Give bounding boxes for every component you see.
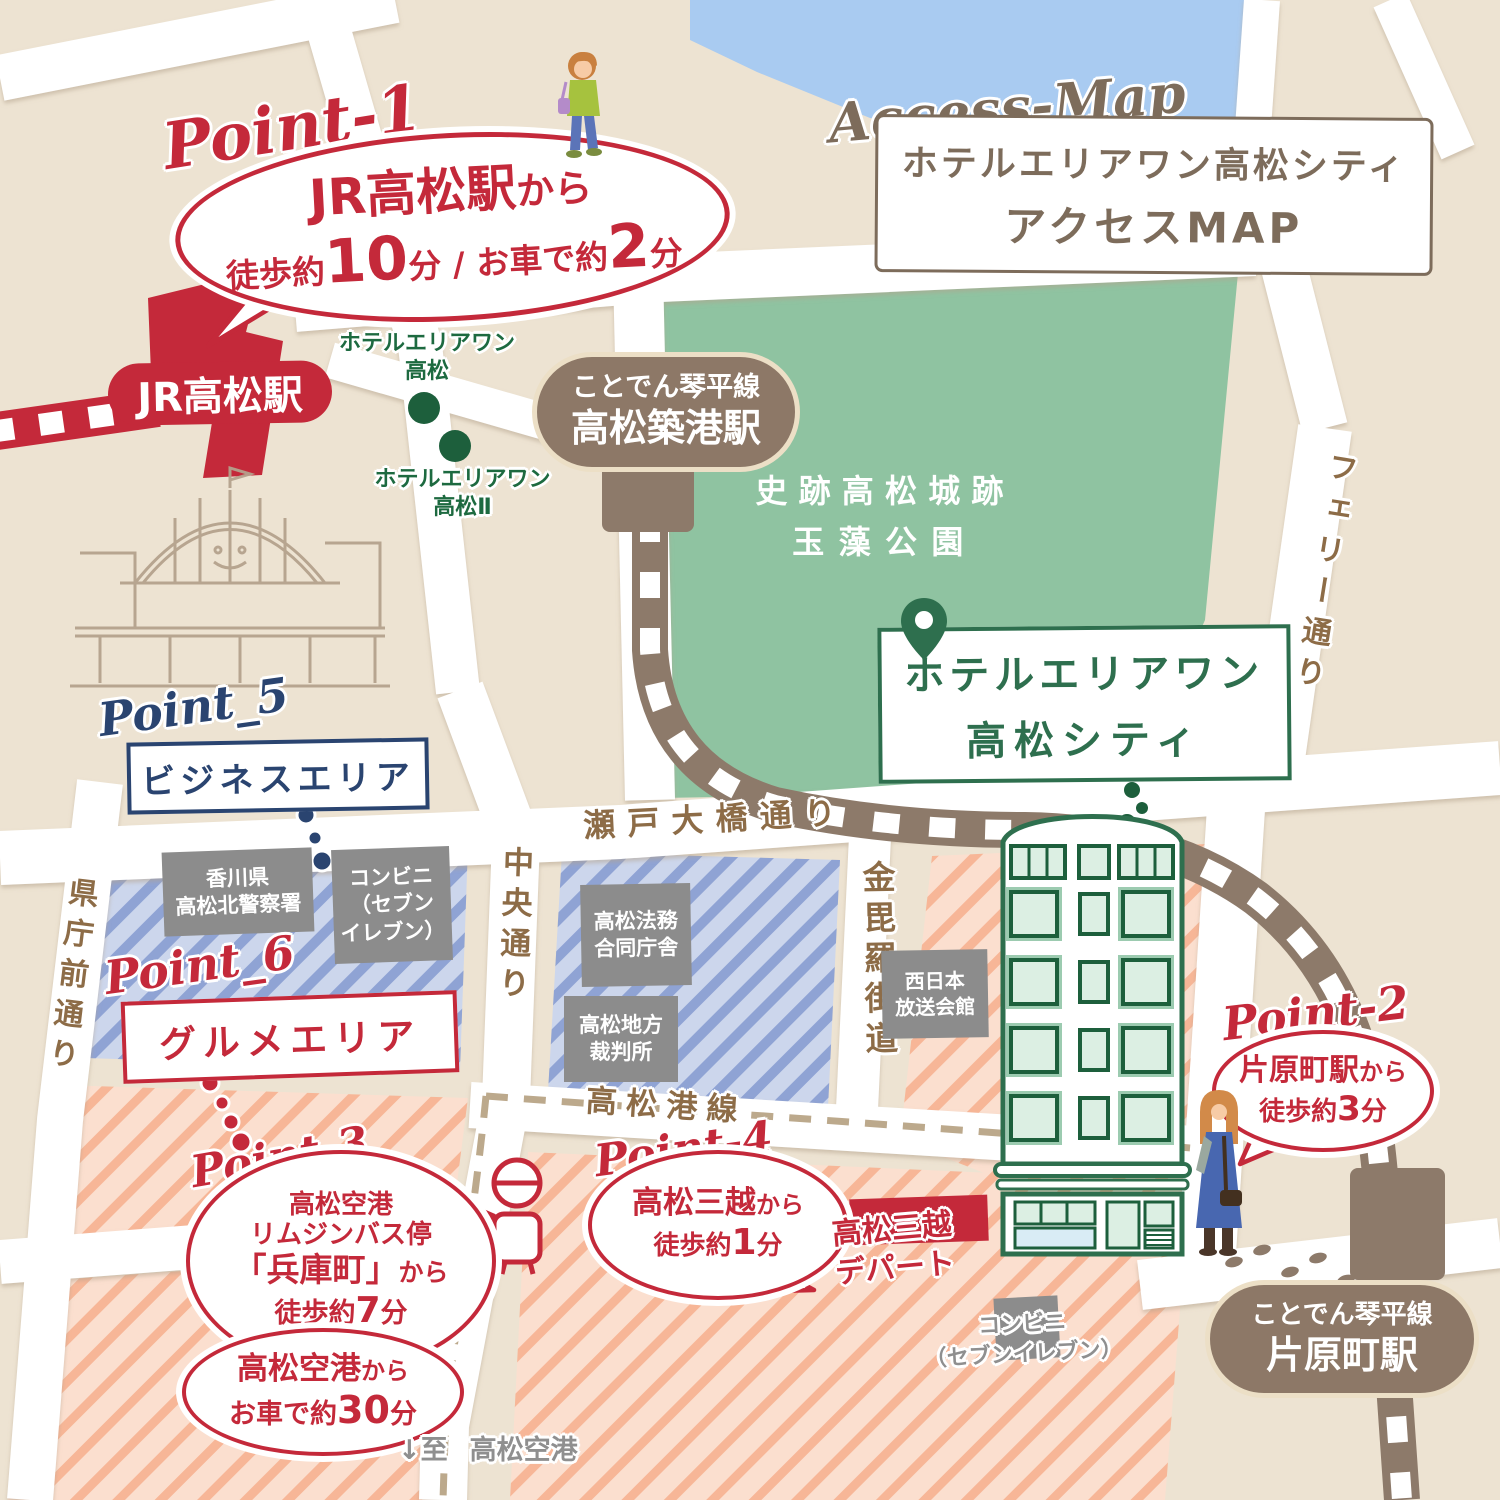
katahara-station-pill: ことでん琴平線 片原町駅	[1205, 1280, 1479, 1398]
homu-godochosha-box: 高松法務 合同庁舎	[580, 883, 692, 987]
katahara-station-block	[1350, 1168, 1445, 1280]
park-label: 史跡高松城跡 玉藻公園	[730, 466, 1040, 568]
chikko-station-pill: ことでん琴平線 高松築港駅	[532, 352, 800, 472]
jr-takamatsu-pill: JR高松駅	[107, 360, 332, 426]
map-title-box: ホテルエリアワン高松シティ アクセスMAP	[874, 114, 1433, 276]
point2-bubble: 片原町駅から 徒歩約3分	[1212, 1030, 1434, 1152]
access-map: Point-1 JR高松駅から 徒歩約10分 / お車で約2分 Access-M…	[0, 0, 1500, 1500]
police-station-box: 香川県 高松北警察署	[162, 847, 315, 936]
hotel-building-illustration	[995, 817, 1190, 1255]
district-court-box: 高松地方 裁判所	[564, 996, 678, 1082]
down-arrow-icon: ↓至	[398, 1435, 448, 1466]
point6-box: グルメエリア	[121, 990, 460, 1084]
map-title-line2: アクセスMAP	[878, 192, 1430, 257]
conbini-left-box: コンビニ （セブン イレブン）	[331, 846, 453, 964]
sister-hotel1-label: ホテルエリアワン 高松	[328, 330, 526, 385]
sister-hotel2-label: ホテルエリアワン 高松Ⅱ	[360, 466, 565, 521]
bus-stop-icon	[492, 1160, 542, 1274]
point5-box: ビジネスエリア	[126, 737, 429, 814]
conbini-bottom-label: コンビニ （セブンイレブン）	[917, 1305, 1130, 1375]
hotel-main-box: ホテルエリアワン 高松シティ	[877, 624, 1291, 784]
airport-direction-note: ↓至高松空港	[398, 1428, 578, 1467]
map-title-line1: ホテルエリアワン高松シティ	[878, 134, 1430, 190]
street-chuo: 中央通り	[486, 845, 538, 1051]
nishinippon-box: 西日本 放送会館	[881, 949, 989, 1039]
